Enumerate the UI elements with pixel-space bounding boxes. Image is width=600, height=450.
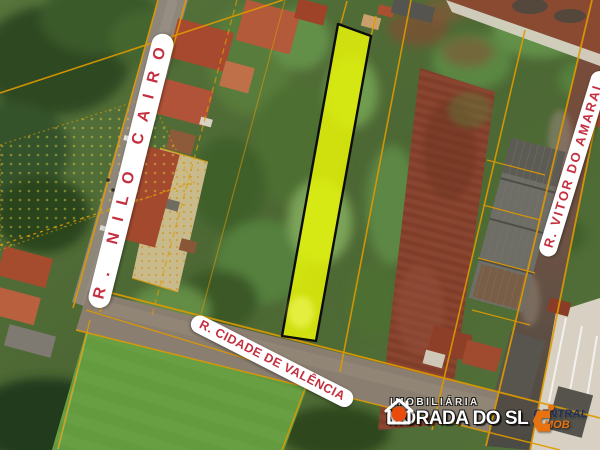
agency-name-post: L	[517, 408, 528, 430]
aerial-photo-listing: R. NILO CAIRO R. VITOR DO AMARAL R. CIDA…	[0, 0, 600, 450]
brand-logo-central-mob: CENTRAL MOB	[529, 401, 588, 431]
agency-logo-name: MORADA DO S L	[386, 408, 528, 430]
agency-logo-morada-do-sol: IMOBILIÁRIA MORADA DO S L	[386, 397, 528, 430]
